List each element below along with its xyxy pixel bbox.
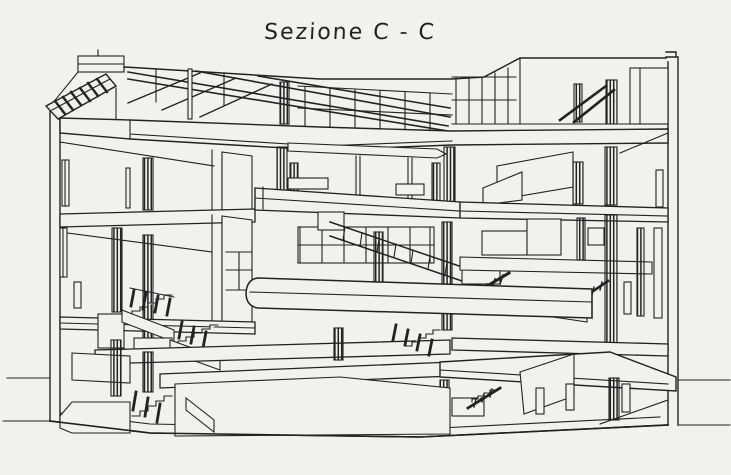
- floor-slab-roof: [60, 118, 668, 150]
- floor-slab-right-lower: [452, 338, 668, 356]
- balcony-slab: [246, 278, 592, 318]
- drawing-sheet: Sezione C - C: [0, 0, 731, 475]
- floor2-center-windows: [298, 227, 434, 263]
- ground-floor-hall: [175, 377, 450, 436]
- left-podium: [60, 340, 130, 433]
- roof-clerestory-right: [452, 58, 668, 124]
- section-drawing: [0, 0, 731, 475]
- floor3-left-rooms: [60, 142, 252, 213]
